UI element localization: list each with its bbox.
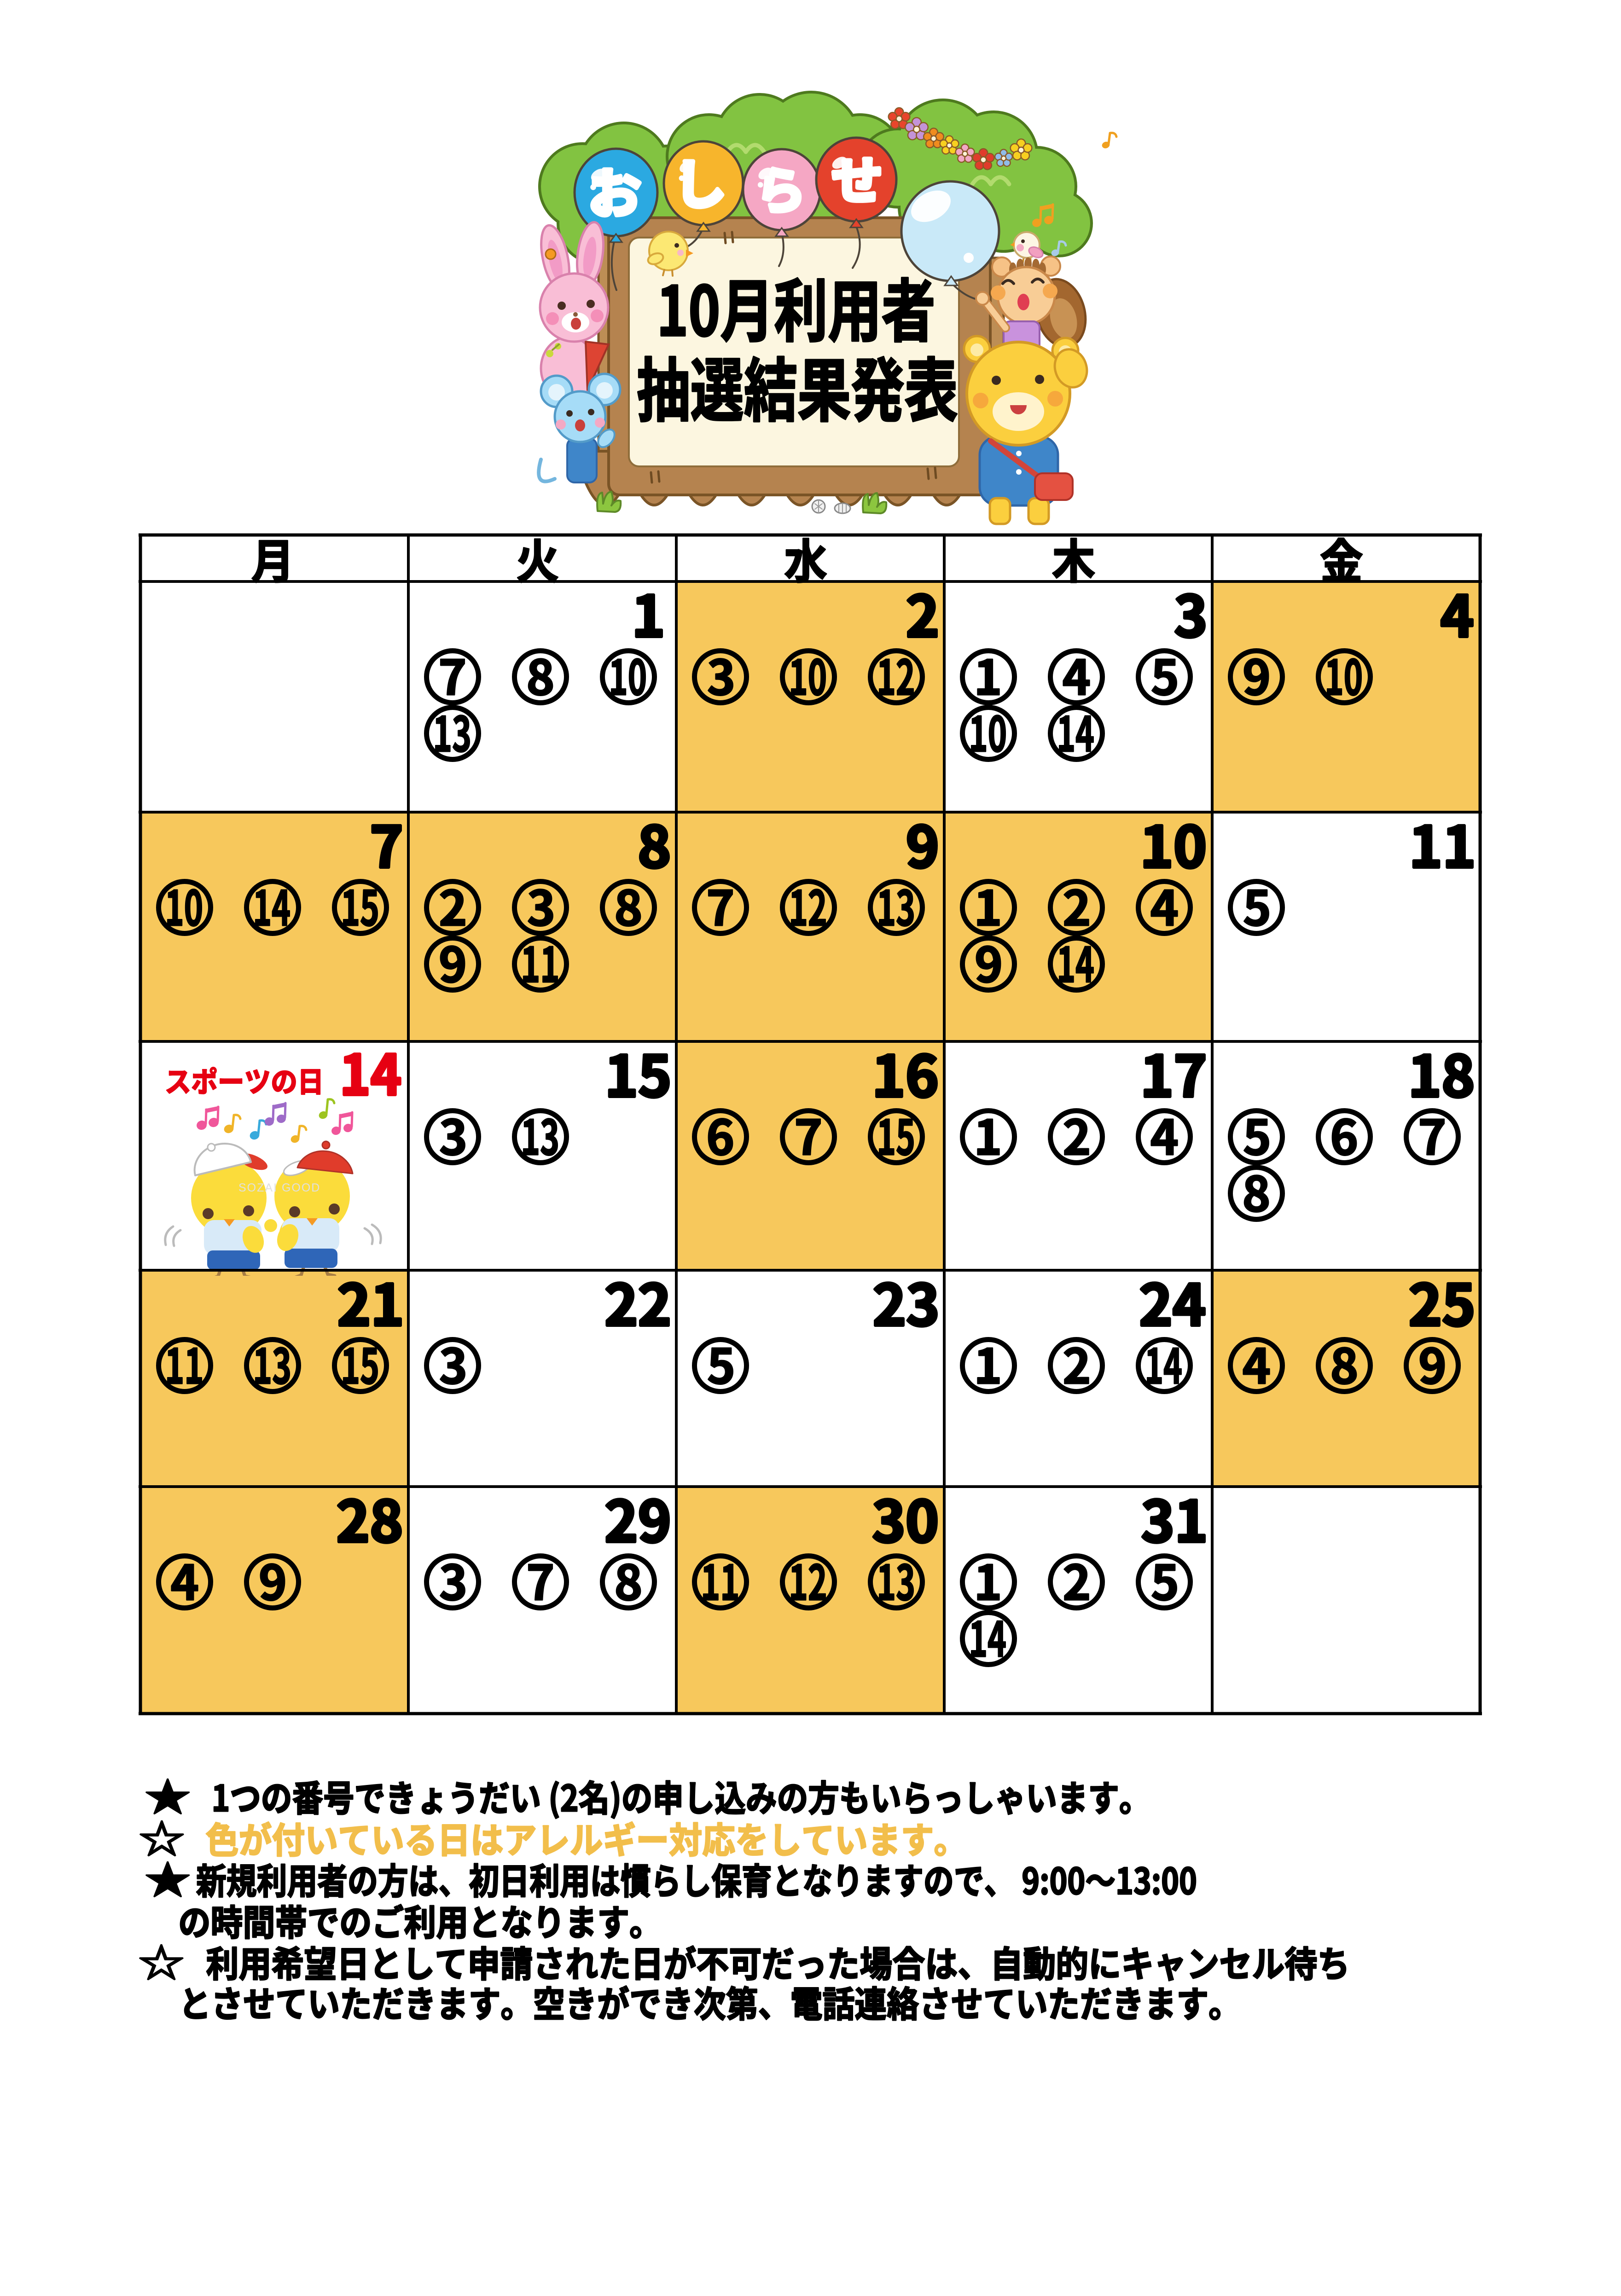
svg-text:SOZAI GOOD: SOZAI GOOD xyxy=(238,1181,320,1194)
